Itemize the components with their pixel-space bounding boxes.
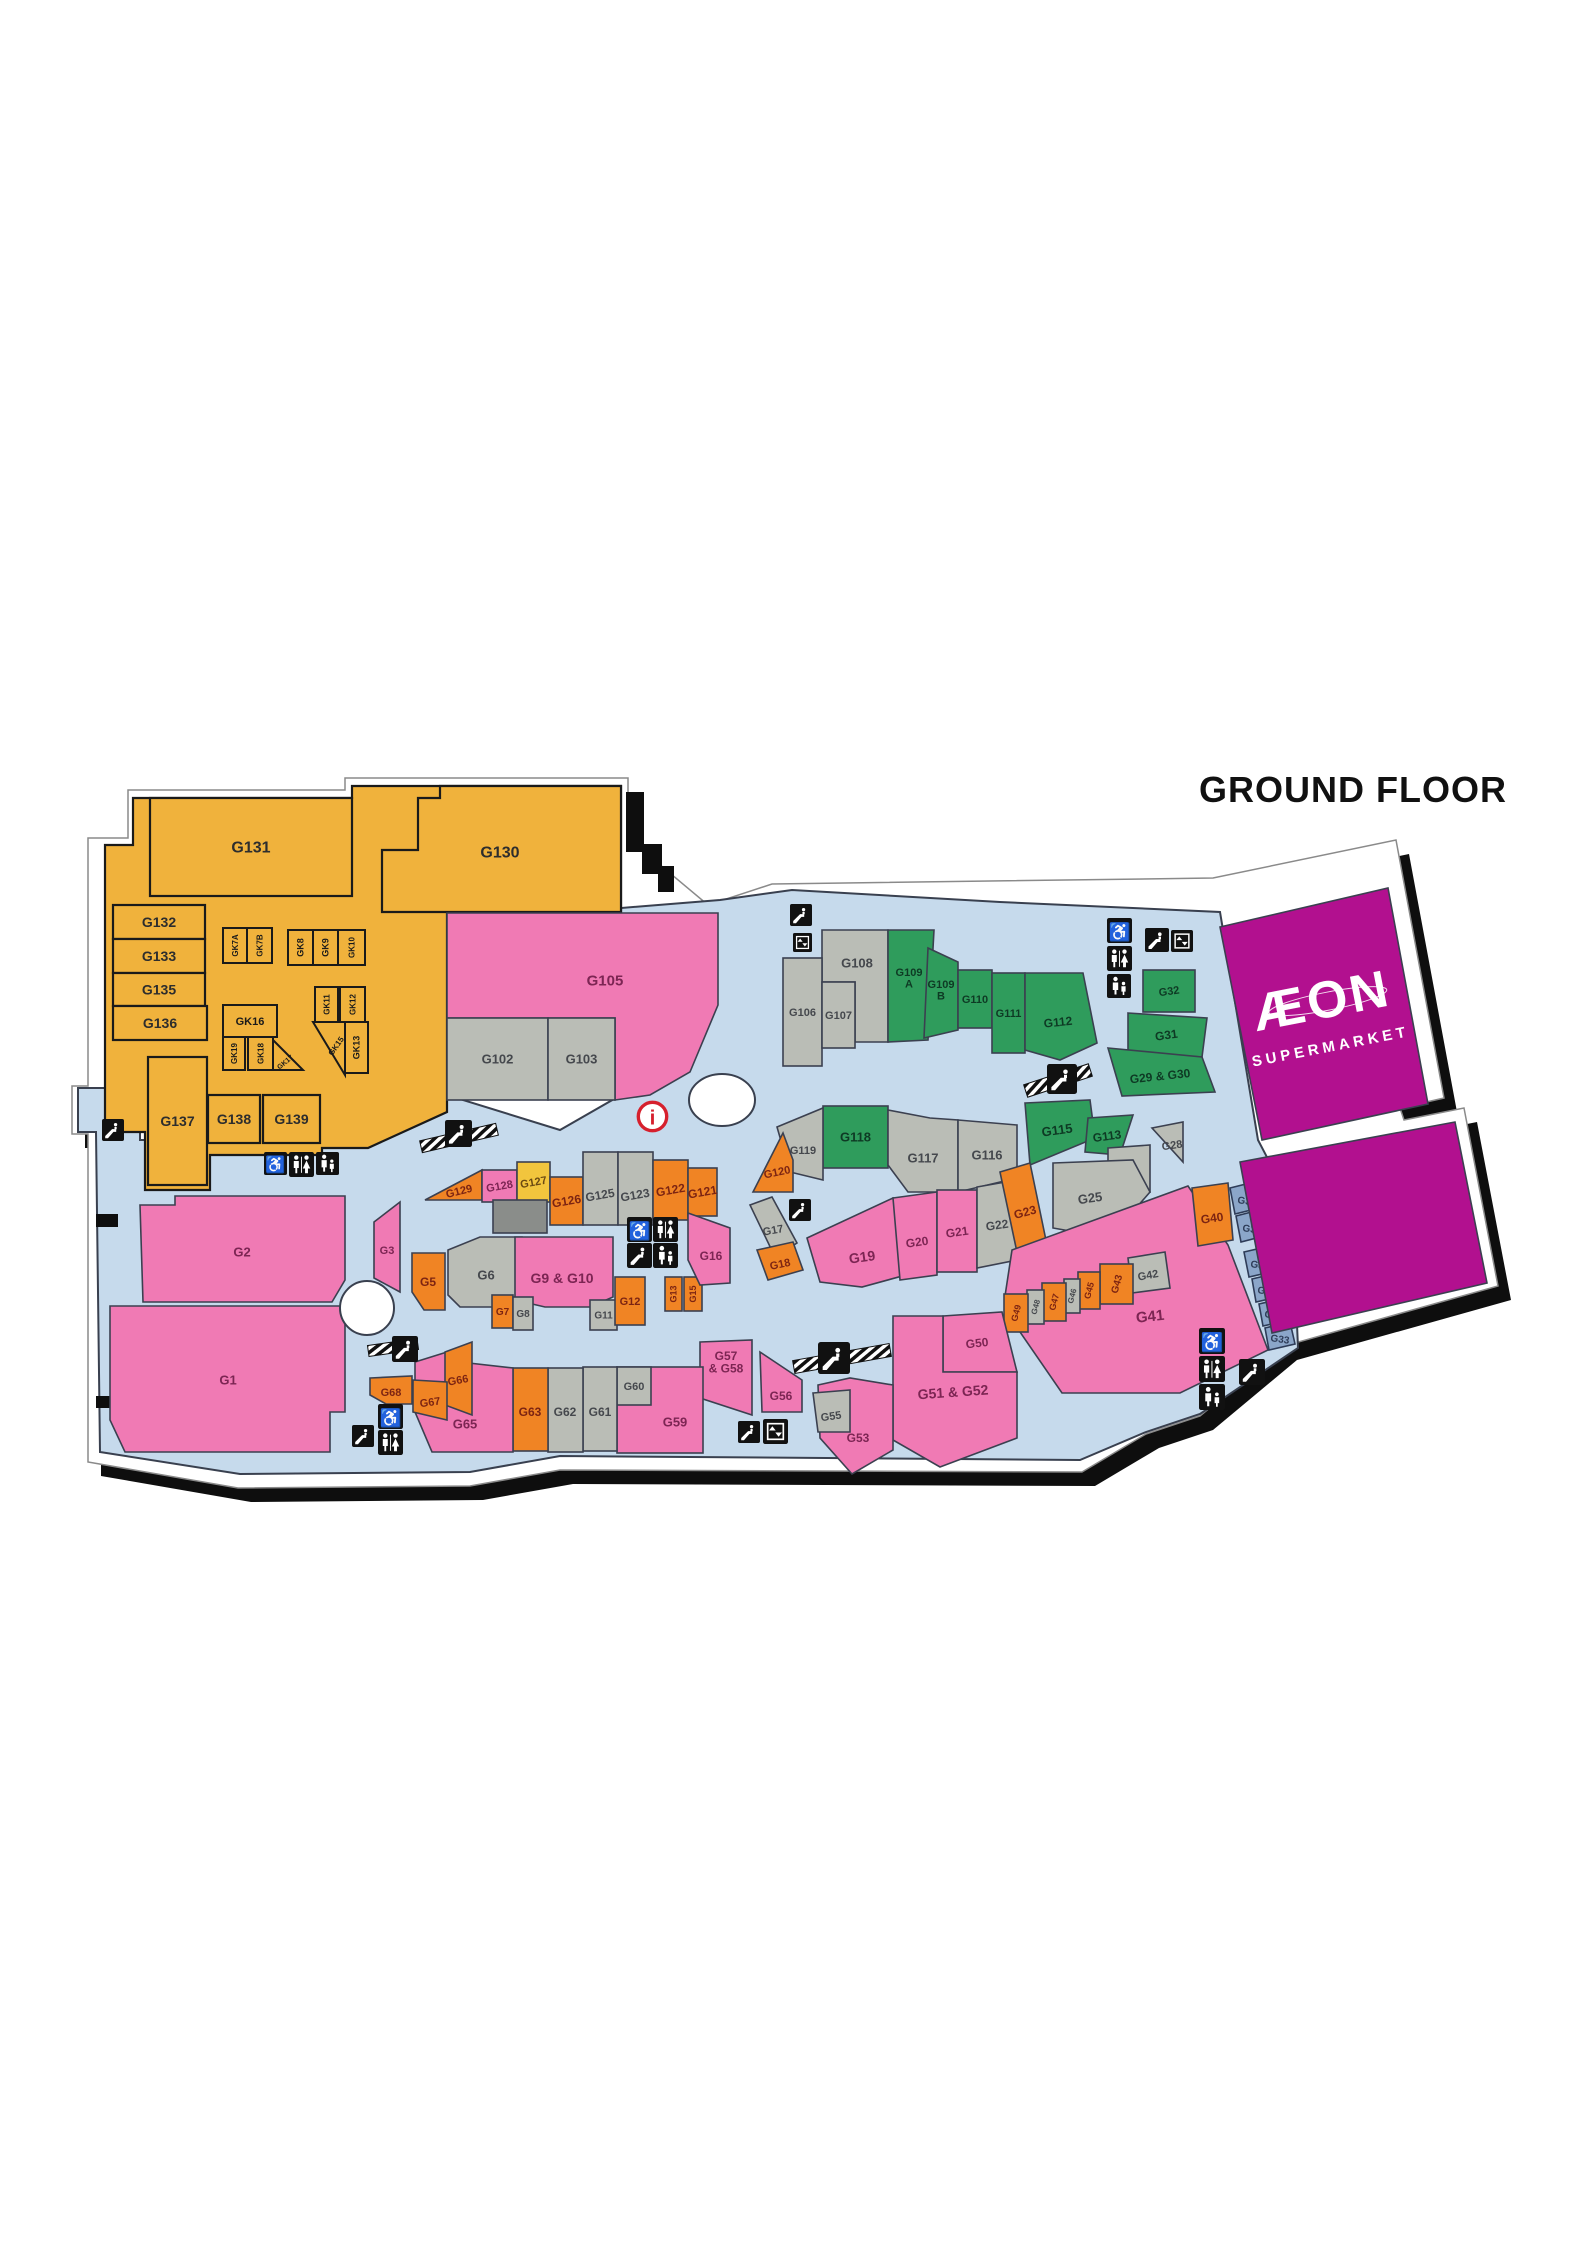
unit-g106[interactable]: G106 — [783, 958, 822, 1066]
wheelchair-icon: ♿ — [1199, 1328, 1225, 1354]
family-icon — [653, 1243, 678, 1268]
unit-label-g102: G102 — [482, 1052, 514, 1067]
unit-gk7b[interactable]: GK7B — [247, 928, 272, 963]
unit-label-g65: G65 — [453, 1417, 478, 1432]
unit-service-block[interactable] — [493, 1200, 547, 1233]
unit-label-g103: G103 — [566, 1052, 598, 1067]
unit-label-g3: G3 — [380, 1245, 395, 1257]
unit-g122[interactable]: G122 — [653, 1160, 688, 1220]
escalator-icon — [790, 904, 812, 926]
unit-label-g107: G107 — [825, 1010, 852, 1022]
unit-label-gk10: GK10 — [347, 937, 356, 958]
unit-label-g138: G138 — [217, 1111, 251, 1127]
svg-text:♿: ♿ — [1108, 921, 1130, 942]
page-title: GROUND FLOOR — [1199, 769, 1507, 810]
family-icon — [1107, 974, 1131, 998]
lift-icon — [1171, 930, 1193, 952]
unit-label-gk8: GK8 — [296, 938, 306, 957]
entrance-mark — [96, 1214, 118, 1227]
escalator-icon — [1239, 1359, 1265, 1385]
unit-label-g61: G61 — [589, 1405, 612, 1419]
escalator-icon — [627, 1243, 652, 1268]
escalator-icon — [789, 1199, 811, 1221]
family-icon — [316, 1152, 339, 1175]
wheelchair-icon: ♿ — [378, 1404, 403, 1429]
unit-g107[interactable]: G107 — [822, 982, 855, 1048]
unit-label-g116: G116 — [971, 1148, 1002, 1163]
unit-label-g50: G50 — [965, 1335, 989, 1351]
unit-label-g62: G62 — [554, 1405, 577, 1419]
unit-g32[interactable]: G32 — [1143, 970, 1195, 1012]
unit-g21[interactable]: G21 — [937, 1190, 977, 1272]
unit-g48[interactable]: G48 — [1027, 1290, 1044, 1324]
unit-g42[interactable]: G42 — [1128, 1252, 1170, 1293]
unit-label-g68: G68 — [381, 1387, 402, 1399]
escalator-icon — [818, 1342, 850, 1374]
unit-label-gk19: GK19 — [230, 1043, 239, 1064]
unit-g45[interactable]: G45 — [1078, 1272, 1100, 1309]
unit-label-g63: G63 — [519, 1405, 542, 1419]
unit-g60[interactable]: G60 — [617, 1367, 651, 1405]
toilets-icon — [1199, 1356, 1225, 1382]
unit-label-g13: G13 — [669, 1285, 679, 1302]
unit-gk10[interactable]: GK10 — [338, 930, 365, 965]
unit-label-g139: G139 — [274, 1111, 308, 1127]
unit-g111[interactable]: G111 — [992, 973, 1025, 1053]
unit-gk18[interactable]: GK18 — [248, 1037, 273, 1070]
unit-label-g56: G56 — [770, 1389, 793, 1403]
unit-label-gk7a: GK7A — [231, 934, 240, 956]
unit-g13[interactable]: G13 — [665, 1277, 682, 1311]
unit-g138[interactable]: G138 — [208, 1095, 260, 1143]
unit-g40[interactable]: G40 — [1192, 1183, 1233, 1246]
unit-g2[interactable]: G2 — [140, 1196, 345, 1302]
unit-label-g117: G117 — [907, 1151, 938, 1166]
svg-text:♿: ♿ — [1201, 1332, 1224, 1354]
unit-gk11[interactable]: GK11 — [315, 987, 338, 1022]
unit-g128[interactable]: G128 — [482, 1170, 517, 1202]
unit-label-g5: G5 — [420, 1275, 436, 1289]
unit-g47[interactable]: G47 — [1042, 1283, 1066, 1321]
unit-g8[interactable]: G8 — [513, 1297, 533, 1330]
unit-label-g53: G53 — [847, 1431, 870, 1445]
unit-g61[interactable]: G61 — [583, 1367, 617, 1451]
unit-gk13[interactable]: GK13 — [345, 1022, 368, 1073]
unit-g67[interactable]: G67 — [413, 1380, 447, 1420]
unit-label-g15: G15 — [688, 1285, 698, 1302]
unit-label-g110: G110 — [962, 994, 988, 1006]
unit-label-g1: G1 — [219, 1373, 236, 1388]
unit-g127[interactable]: G127 — [517, 1162, 550, 1202]
atrium-opening — [689, 1074, 755, 1126]
unit-label-g108: G108 — [841, 956, 873, 971]
unit-label-g106: G106 — [789, 1007, 816, 1019]
unit-label-gk12: GK12 — [348, 994, 357, 1015]
unit-gk9[interactable]: GK9 — [313, 930, 338, 965]
unit-label-g60: G60 — [624, 1381, 645, 1393]
toilets-icon — [378, 1430, 403, 1455]
lift-icon — [763, 1419, 788, 1444]
unit-label-g9g10: G9 & G10 — [530, 1270, 593, 1286]
svg-text:i: i — [650, 1106, 656, 1129]
unit-g137[interactable]: G137 — [148, 1057, 207, 1185]
unit-g136[interactable]: G136 — [113, 1006, 207, 1040]
unit-label-g135: G135 — [142, 981, 176, 997]
unit-gk7a[interactable]: GK7A — [223, 928, 247, 963]
unit-label-gk11: GK11 — [322, 994, 331, 1015]
unit-g62[interactable]: G62 — [548, 1368, 583, 1452]
unit-label-g132: G132 — [142, 914, 176, 930]
unit-g121[interactable]: G121 — [687, 1168, 719, 1216]
unit-label-g6: G6 — [477, 1268, 494, 1283]
svg-text:♿: ♿ — [265, 1155, 285, 1174]
unit-g132[interactable]: G132 — [113, 905, 205, 939]
unit-g117[interactable]: G117 — [888, 1110, 958, 1192]
unit-label-g16: G16 — [700, 1249, 723, 1263]
wheelchair-icon: ♿ — [264, 1152, 287, 1175]
unit-gk12[interactable]: GK12 — [340, 987, 365, 1022]
unit-label-g136: G136 — [143, 1015, 177, 1031]
unit-g126[interactable]: G126 — [550, 1177, 583, 1225]
floor-plan-page: { "title": "GROUND FLOOR", "aeon": { "na… — [0, 0, 1587, 2245]
unit-label-gk13: GK13 — [352, 1036, 362, 1060]
unit-label-gk9: GK9 — [321, 938, 331, 957]
entrance-mark — [626, 792, 644, 852]
toilets-icon — [653, 1217, 678, 1242]
escalator-icon — [1047, 1064, 1077, 1094]
unit-label-g130: G130 — [480, 845, 519, 862]
unit-g55[interactable]: G55 — [813, 1390, 850, 1432]
unit-g12[interactable]: G12 — [615, 1277, 645, 1325]
unit-label-g7: G7 — [496, 1307, 510, 1318]
unit-g11[interactable]: G11 — [590, 1300, 617, 1330]
unit-g130[interactable]: G130 — [382, 786, 621, 912]
unit-label-g12: G12 — [620, 1296, 641, 1308]
floor-plan: G131G130G132G133G135G136G137G138G139GK7A… — [0, 0, 1587, 2245]
lift-icon — [793, 933, 812, 952]
unit-g102[interactable]: G102 — [447, 1018, 548, 1100]
unit-g7[interactable]: G7 — [492, 1295, 513, 1328]
unit-label-g41: G41 — [1135, 1307, 1165, 1327]
unit-g112[interactable]: G112 — [1025, 973, 1097, 1060]
unit-g123[interactable]: G123 — [618, 1152, 653, 1225]
toilets-icon — [289, 1152, 314, 1177]
escalator-icon — [352, 1425, 374, 1447]
unit-label-g119: G119 — [790, 1145, 816, 1157]
unit-g118[interactable]: G118 — [823, 1106, 888, 1168]
escalator-icon — [392, 1336, 418, 1362]
unit-g125[interactable]: G125 — [583, 1152, 618, 1225]
unit-g131[interactable]: G131 — [150, 798, 352, 896]
atrium-opening — [340, 1281, 394, 1335]
family-icon — [1199, 1384, 1225, 1410]
entrance-mark — [658, 866, 674, 892]
unit-label-g2: G2 — [233, 1245, 250, 1260]
unit-gk16[interactable]: GK16 — [223, 1005, 277, 1037]
unit-g133[interactable]: G133 — [113, 939, 205, 973]
wheelchair-icon: ♿ — [627, 1217, 652, 1242]
unit-label-gk18: GK18 — [256, 1043, 265, 1064]
unit-g49[interactable]: G49 — [1004, 1294, 1028, 1332]
unit-g1[interactable]: G1 — [110, 1306, 345, 1452]
escalator-icon — [738, 1421, 760, 1443]
unit-gk19[interactable]: GK19 — [223, 1037, 245, 1070]
unit-gk8[interactable]: GK8 — [288, 930, 313, 965]
unit-label-gk7b: GK7B — [255, 934, 264, 956]
unit-g110[interactable]: G110 — [958, 970, 992, 1028]
unit-label-gk16: GK16 — [236, 1016, 265, 1028]
unit-g109b[interactable]: G109B — [924, 948, 958, 1038]
unit-g103[interactable]: G103 — [548, 1018, 615, 1100]
unit-g66[interactable]: G66 — [445, 1342, 472, 1415]
escalator-icon — [445, 1120, 472, 1147]
unit-label-g105: G105 — [587, 972, 624, 989]
unit-label-g11: G11 — [594, 1311, 613, 1322]
svg-text:♿: ♿ — [379, 1407, 401, 1428]
toilets-icon — [1107, 946, 1132, 971]
unit-g43[interactable]: G43 — [1100, 1264, 1133, 1304]
wheelchair-icon: ♿ — [1107, 918, 1132, 943]
unit-label-g59: G59 — [663, 1415, 688, 1430]
unit-g139[interactable]: G139 — [263, 1095, 320, 1143]
unit-label-g137: G137 — [160, 1113, 194, 1129]
svg-text:♿: ♿ — [628, 1220, 650, 1241]
escalator-icon — [1145, 928, 1169, 952]
unit-label-g131: G131 — [231, 840, 270, 857]
unit-g63[interactable]: G63 — [513, 1368, 548, 1451]
unit-label-g118: G118 — [840, 1130, 871, 1145]
unit-g135[interactable]: G135 — [113, 973, 205, 1006]
unit-label-g111: G111 — [996, 1008, 1022, 1020]
info-icon: i — [638, 1102, 666, 1130]
escalator-icon — [102, 1119, 124, 1141]
unit-label-g8: G8 — [516, 1309, 530, 1320]
unit-label-g133: G133 — [142, 948, 176, 964]
unit-g20[interactable]: G20 — [893, 1192, 937, 1280]
